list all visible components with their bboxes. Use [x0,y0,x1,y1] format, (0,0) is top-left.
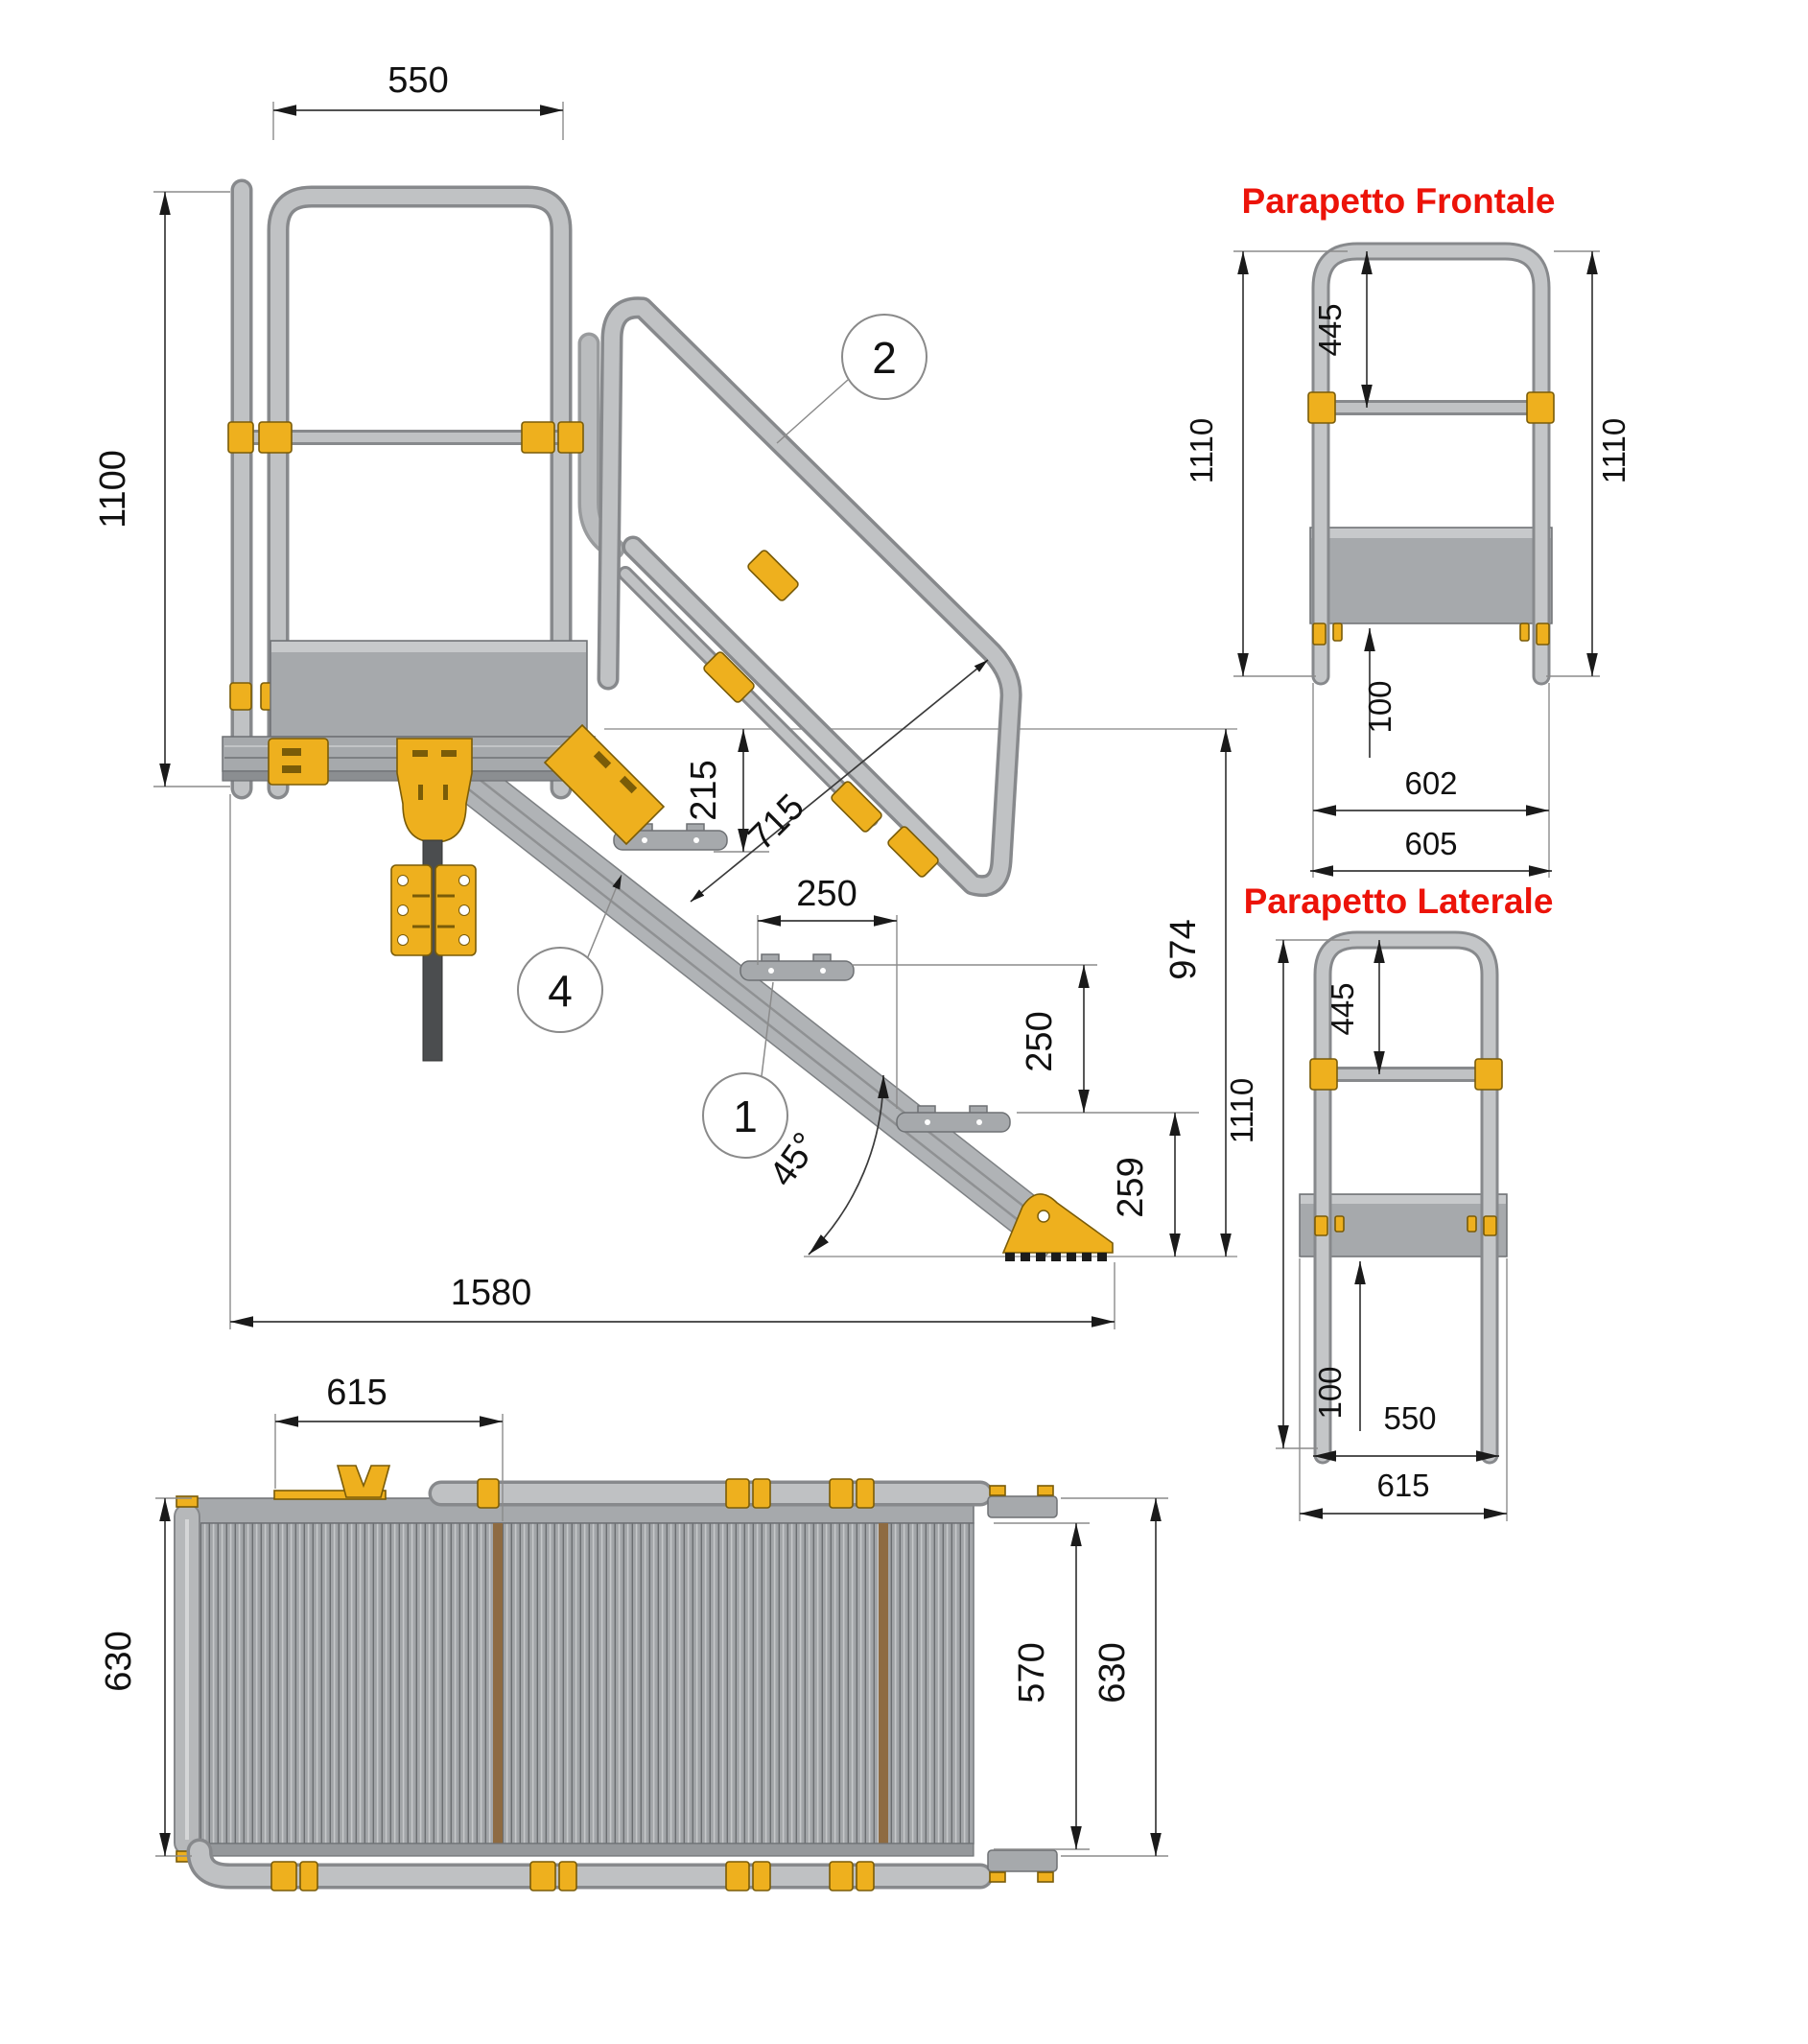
main-side-view: 550 1100 215 715 250 250 [93,60,1237,1329]
side-dim-label-100: 100 [1312,1366,1348,1419]
dim-1100: 1100 [93,192,230,787]
front-dim-100: 100 [1362,628,1397,758]
dim-label-259: 259 [1111,1157,1151,1217]
side-parapet-title: Parapetto Laterale [1244,881,1554,921]
plan-top-handrail [441,1479,980,1508]
mounting-bracket-center [397,739,472,842]
plan-bottom-handrail [200,1851,980,1891]
front-dim-label-100: 100 [1362,680,1397,733]
plan-dim-570: 570 [994,1523,1090,1849]
dim-label-715: 715 [740,787,812,858]
dim-label-250-run: 250 [796,874,857,914]
front-dim-605: 605 [1310,826,1552,871]
plan-dim-label-630-left: 630 [99,1631,139,1691]
plan-left-rail-tube [175,1496,200,1862]
deck-separator-strip-2 [879,1523,888,1844]
plan-view: 615 630 570 630 [99,1373,1168,1891]
mounting-bracket-left [269,739,328,785]
front-dim-label-445: 445 [1312,303,1348,356]
plan-dim-label-630-right: 630 [1092,1642,1133,1703]
deck-separator-strip [493,1523,503,1844]
dim-label-215: 215 [684,760,724,820]
dim-label-1100: 1100 [93,450,133,529]
dim-550: 550 [273,60,563,140]
drawing-sheet: 550 1100 215 715 250 250 [0,0,1808,2044]
side-parapet-view: Parapetto Laterale 445 1110 [1224,881,1553,1521]
front-dim-1110-right: 1110 [1546,251,1632,676]
front-parapet-kickplate [1310,528,1552,623]
side-dim-label-550: 550 [1383,1400,1436,1436]
plan-lifting-bracket [338,1466,389,1497]
plan-dim-label-570: 570 [1012,1642,1052,1703]
dim-974: 974 [1163,729,1226,1257]
side-dim-label-1110: 1110 [1224,1078,1259,1144]
kick-plate [270,641,587,737]
front-dim-label-1110-right: 1110 [1596,418,1632,484]
callout-4-label: 4 [548,966,573,1016]
dim-259: 259 [1111,1113,1175,1257]
dim-label-974: 974 [1163,919,1204,979]
handrail-clamps [702,549,939,878]
side-dim-label-615: 615 [1376,1468,1429,1503]
callout-1-label: 1 [733,1092,758,1141]
front-dim-label-605: 605 [1404,826,1457,861]
dim-label-1580: 1580 [451,1273,532,1313]
dim-1580: 1580 [230,794,1115,1329]
dim-250-rise: 250 [852,965,1199,1113]
callout-2-label: 2 [872,333,897,383]
front-dim-label-602: 602 [1404,765,1457,801]
plan-dim-label-615: 615 [326,1373,387,1413]
front-parapet-view: Parapetto Frontale 445 1110 [1184,181,1632,878]
plan-deck [197,1498,974,1856]
dim-label-550: 550 [387,60,448,101]
front-parapet-title: Parapetto Frontale [1242,181,1556,221]
side-dim-label-445: 445 [1325,982,1360,1035]
dim-label-250-rise: 250 [1020,1011,1060,1071]
callout-2: 2 [777,315,927,443]
front-dim-label-1110-left: 1110 [1184,418,1219,484]
